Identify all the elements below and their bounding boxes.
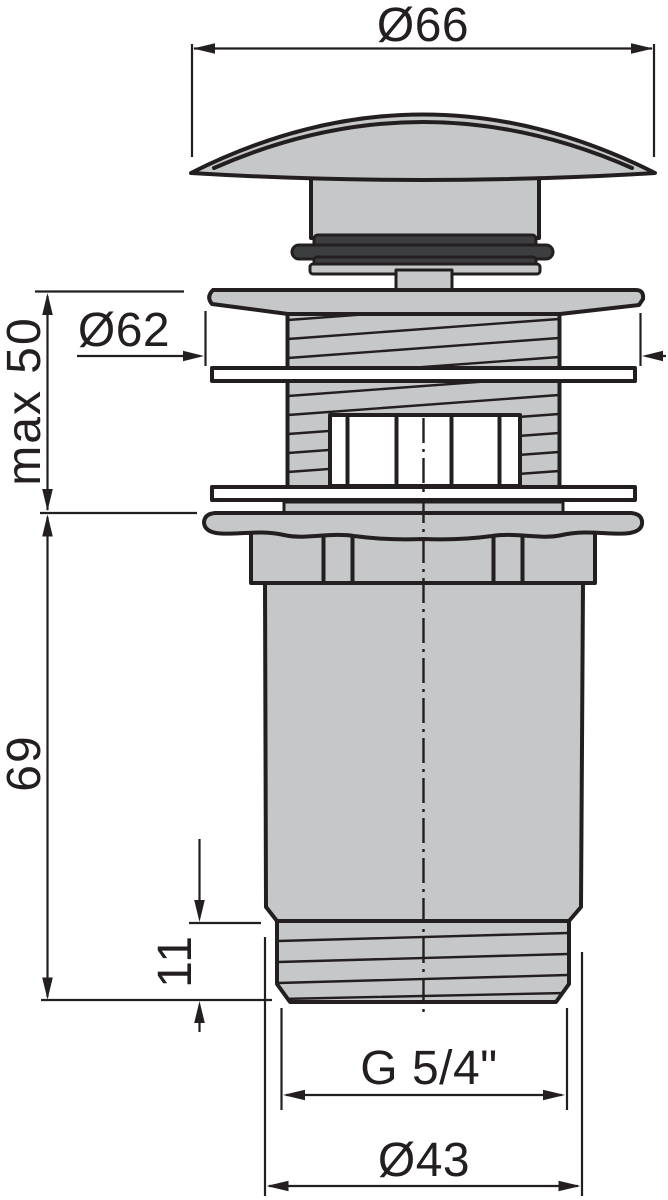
arrow-down-icon [42,489,53,511]
slot-window [330,415,520,486]
arrow-up-icon [42,293,53,315]
arrow-up-icon [194,1001,205,1023]
dim-body-length: 69 [0,515,272,1001]
cap-dome [191,115,655,181]
arrow-down-icon [194,900,205,922]
arrow-right-icon [631,43,653,54]
dim-label-thread-size: G 5/4" [360,1042,497,1095]
arrow-left-icon [642,351,663,362]
dim-thread-size: G 5/4" [282,1008,568,1110]
dim-label-body-length: 69 [0,734,51,791]
dim-label-outlet-diameter: Ø43 [378,1134,470,1187]
arrow-left-icon [283,1090,305,1101]
arrow-left-icon [267,1181,289,1192]
arrow-down-icon [42,978,53,1000]
dim-label-thread-length: 11 [149,934,202,988]
upper-washer [212,368,635,381]
arrow-left-icon [193,43,215,54]
dim-label-clamping-range: max 50 [0,316,51,485]
dim-label-cap-diameter: Ø66 [377,0,469,52]
arrow-right-icon [543,1090,565,1101]
top-flange [209,290,643,314]
arrow-right-icon [559,1181,581,1192]
drain-valve-dimension-drawing: Ø66 Ø62 max 50 69 [0,0,668,1200]
dim-thread-length: 11 [149,839,261,1032]
valve-part [191,115,655,1018]
technical-drawing-canvas: Ø66 Ø62 max 50 69 [0,0,668,1200]
arrow-up-icon [42,515,53,537]
dim-label-flange-diameter: Ø62 [78,304,170,357]
arrow-right-icon [183,351,204,362]
